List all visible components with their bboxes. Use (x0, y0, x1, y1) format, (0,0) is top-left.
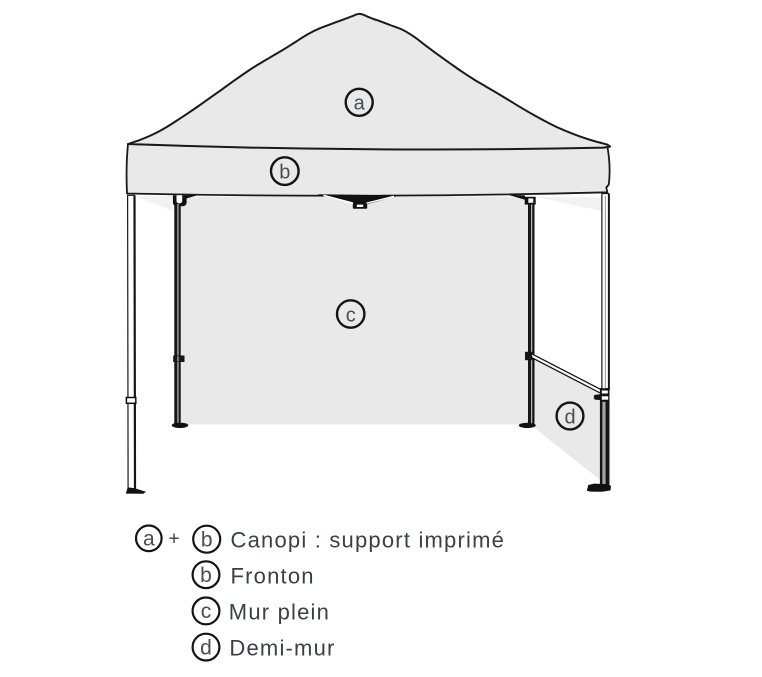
svg-text:b: b (200, 564, 212, 587)
svg-text:c: c (346, 305, 356, 327)
svg-text:d: d (200, 637, 212, 660)
svg-text:b: b (279, 162, 290, 184)
svg-text:Demi-mur: Demi-mur (229, 636, 335, 661)
svg-text:d: d (564, 407, 575, 429)
svg-text:+: + (168, 529, 179, 550)
svg-text:Canopi : support imprimé: Canopi : support imprimé (231, 528, 506, 553)
svg-text:a: a (354, 93, 366, 115)
svg-text:Fronton: Fronton (231, 563, 315, 588)
svg-text:b: b (201, 529, 213, 552)
svg-text:a: a (143, 528, 155, 551)
svg-text:Mur plein: Mur plein (229, 600, 330, 625)
svg-text:c: c (201, 600, 212, 623)
